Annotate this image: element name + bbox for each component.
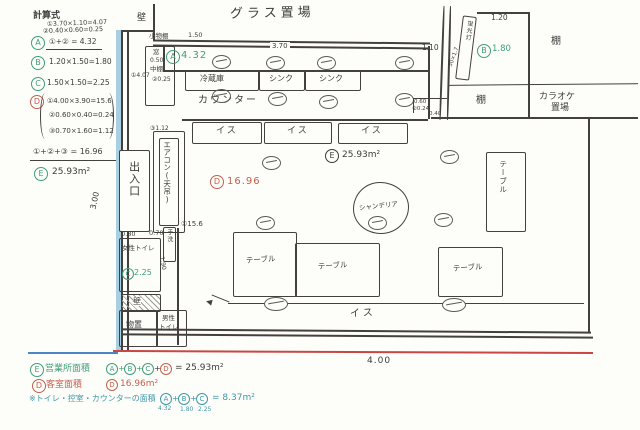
plan-badge-a: A (166, 50, 180, 64)
red-marker-line (113, 350, 593, 354)
dim-110: 1.10 (422, 44, 439, 53)
calc-b-text: 1.20×1.50=1.80 (49, 58, 112, 67)
dim-300: 3.00 (89, 191, 102, 210)
plan-badge-e: E (325, 149, 339, 163)
karaoke-corner-right-wall (528, 12, 530, 118)
label-bench: イス (350, 307, 376, 320)
calc-underline-a (46, 49, 102, 50)
label-table-4: テーブル (498, 160, 507, 224)
legend-r3-b: B (178, 393, 190, 405)
equipment-marker-doodle (266, 56, 285, 70)
legend-r1-c: C (142, 363, 154, 375)
calc-a-sum: ①+② = 4.32 (49, 38, 96, 47)
plan-area-a: 4.32 (181, 50, 207, 62)
label-sink-1: シンク (269, 74, 293, 83)
label-shelf-top: 棚 (551, 36, 561, 48)
label-sink-2: シンク (319, 74, 343, 83)
equipment-marker-doodle (440, 150, 459, 164)
calc-badge-e: E (34, 167, 48, 181)
calc-underline-d (30, 160, 116, 161)
plan-area-b: 1.80 (492, 45, 511, 55)
wall-bottom-outer (121, 328, 591, 333)
calc-badge-c: C (31, 77, 45, 91)
calc-badge-a: A (31, 36, 45, 50)
legend-badge-e: E (30, 363, 44, 377)
legend-row1-label: 営業所面積 (45, 364, 90, 374)
wall-glass-bottom (153, 45, 430, 49)
counter-left-wall (163, 46, 165, 71)
label-small-shelf: 小物棚 (149, 33, 169, 40)
label-women-toilet: 女性トイレ (122, 245, 155, 252)
calc-d-sum: ①+②+③ = 16.96 (33, 147, 103, 156)
legend-row3-sub-b: 1.80 (180, 407, 193, 414)
plan-area-e: 25.93m² (342, 150, 380, 160)
label-men-toilet-1: 男性 (162, 315, 175, 322)
label-fridge: 冷蔵庫 (200, 74, 224, 83)
equipment-marker-doodle (268, 92, 287, 106)
legend-row3-result: = 8.37m² (212, 393, 255, 403)
dim-370: 3.70 (270, 42, 290, 50)
dim-120: 1.20 (491, 14, 508, 23)
calc-brace-right (104, 93, 114, 139)
dim-150: 1.50 (188, 32, 202, 39)
legend-row3-sub-c: 2.25 (198, 407, 211, 414)
marker-area-15: ①15.6 (181, 220, 203, 228)
plan-badge-b: B (477, 44, 491, 58)
bench-marker-doodle (442, 298, 466, 312)
equipment-marker-doodle (395, 93, 414, 107)
marker-area-2: ②0.25 (152, 77, 171, 84)
legend-r1-a: A (106, 363, 118, 375)
plan-badge-c: C (122, 268, 134, 280)
wall-main-right (588, 118, 590, 332)
legend-r3-a: A (160, 393, 172, 405)
dim-190: 1.90 (157, 256, 166, 270)
legend-r1-b: B (124, 363, 136, 375)
legend-row1-result: = 25.93m² (175, 363, 224, 373)
equipment-marker-doodle (319, 95, 338, 109)
label-aircon: エアコン(天吊) (162, 141, 171, 223)
equipment-marker-doodle (434, 213, 453, 227)
legend-r1-d: D (160, 363, 172, 375)
marker-area-024: ②0.24 (412, 106, 429, 112)
equipment-marker-doodle (212, 89, 231, 103)
karaoke-divider-line-1 (448, 83, 638, 86)
equipment-marker-doodle (368, 216, 387, 230)
calc-c-text: 1.50×1.50=2.25 (47, 79, 110, 88)
calc-d1: ①4.00×3.90=15.6 (47, 97, 112, 105)
calc-badge-b: B (31, 56, 45, 70)
label-chair-1: イス (216, 126, 238, 136)
counter-front-line (182, 119, 428, 121)
legend-row2-label: 客室面積 (46, 380, 82, 390)
legend-row3-sub-a: 4.32 (158, 406, 171, 413)
dim-070: 0.70 (149, 230, 163, 237)
wall-glass-top (153, 40, 430, 44)
plan-area-c: 2.25 (134, 268, 152, 277)
label-wall-mid: 壁 (133, 297, 141, 306)
blue-marker-line (28, 352, 118, 354)
equipment-marker-doodle (262, 156, 281, 170)
label-chair-2: イス (287, 126, 309, 136)
label-shelf-lower: 棚 (476, 95, 486, 107)
dim-400: 4.00 (367, 356, 391, 366)
wall-right-outer (439, 6, 445, 120)
equipment-marker-doodle (212, 55, 231, 69)
wall-bottom-inner (121, 333, 593, 338)
equipment-marker-doodle (395, 56, 414, 70)
floor-plan-sketch: 計算式 ①3.70×1.10=4.07 ②0.40×0.60=0.25 A ①+… (0, 0, 640, 430)
label-karaoke-2: 置場 (551, 103, 569, 113)
legend-r2-d: D (106, 379, 118, 391)
label-hand-wash: 手洗 (165, 229, 172, 259)
dim-060: 0.60 (414, 99, 426, 105)
marker-area-1: ①4.07 (131, 73, 150, 80)
label-karaoke-1: カラオケ (539, 92, 575, 102)
legend-badge-d: D (32, 379, 46, 393)
label-mid-shelf: 中棚 (150, 66, 163, 73)
plan-area-d: 16.96 (227, 176, 261, 188)
plan-badge-d: D (210, 175, 224, 189)
label-window: 窓 (153, 49, 160, 56)
legend-r3-c: C (196, 393, 208, 405)
label-chair-3: イス (361, 126, 383, 136)
label-entrance: 出入口 (127, 161, 140, 221)
legend-row3-label: ※トイレ・控室・カウンターの面積 (29, 394, 156, 403)
bench-arrow-line (211, 294, 229, 302)
calc-brace-left (40, 93, 50, 139)
equipment-marker-doodle (317, 56, 336, 70)
bench-arrow-head (205, 298, 212, 305)
label-wall-top: 壁 (137, 13, 146, 23)
calc-a2: ②0.40×0.60=0.25 (43, 26, 103, 36)
equipment-marker-doodle (256, 216, 275, 230)
label-glass-storage: グラス置場 (230, 6, 315, 22)
bench-marker-doodle (264, 297, 288, 311)
legend-row2-value: 16.96m² (120, 379, 158, 389)
dim-050: 0.50 (150, 58, 163, 65)
table-box-1 (233, 232, 297, 297)
calc-e-text: 25.93m² (52, 167, 90, 177)
karaoke-divider-line-2 (431, 117, 638, 119)
